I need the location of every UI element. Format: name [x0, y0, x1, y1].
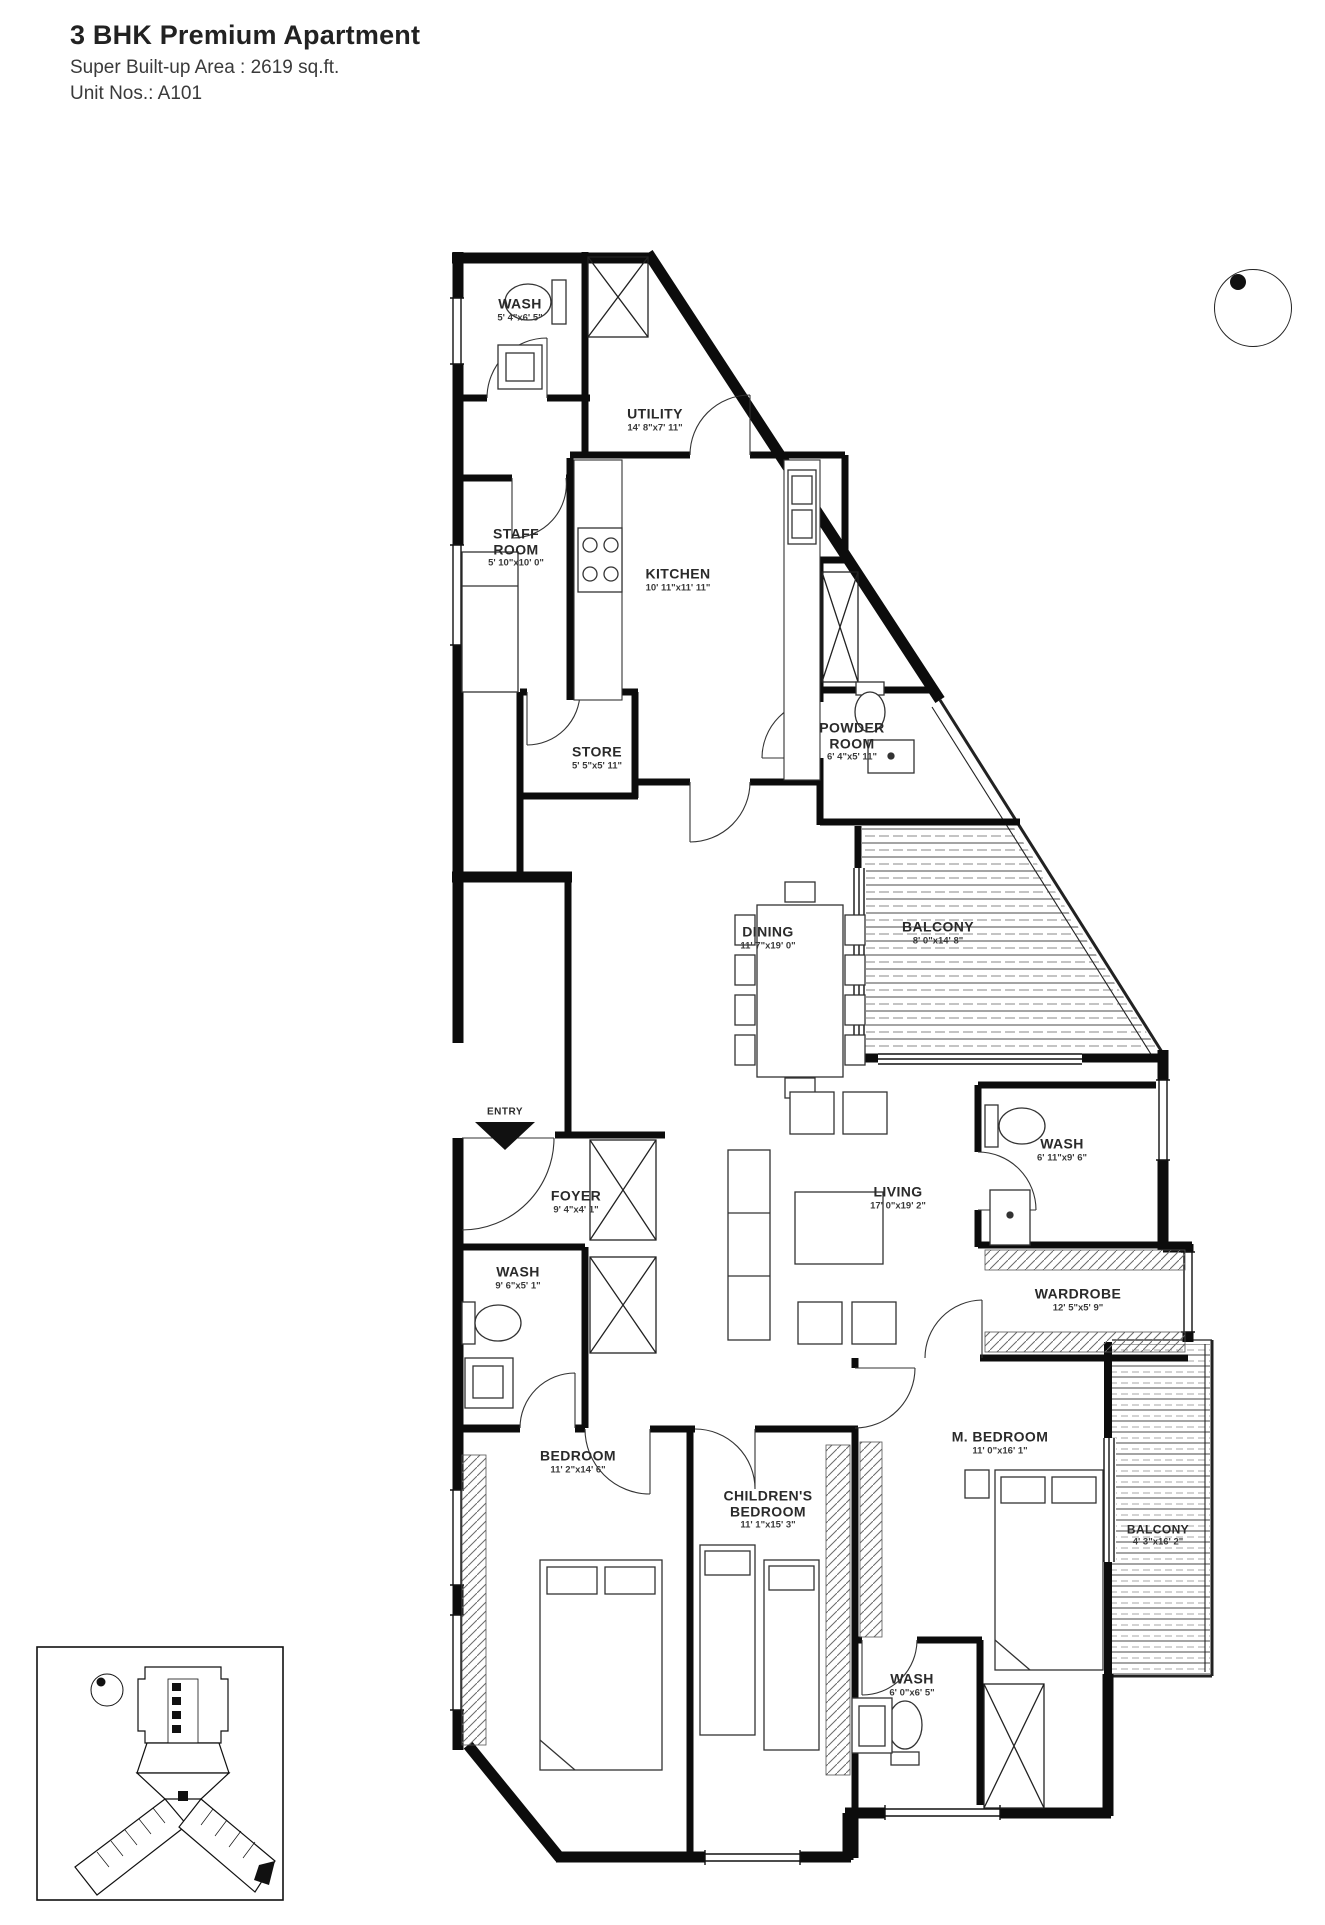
master-bed-icon — [965, 1470, 1103, 1670]
toilet-powder-icon — [855, 682, 885, 732]
stove-icon — [578, 528, 622, 592]
key-plan-svg — [35, 1645, 285, 1902]
toilet-wash2-icon — [462, 1302, 521, 1408]
toilet-wash-bottom-icon — [852, 1698, 922, 1765]
dining-table-icon — [735, 882, 865, 1098]
basin-powder-icon — [868, 740, 914, 773]
key-plan-compass-icon — [91, 1674, 123, 1706]
bedroom-bed-icon — [540, 1560, 662, 1770]
floor-plan-svg — [0, 0, 1325, 1925]
toilet-wash1-icon — [505, 280, 566, 324]
toilet-wash-living-icon — [985, 1105, 1045, 1245]
kitchen-counter-icon — [574, 460, 820, 780]
basin-wash1-icon — [498, 345, 542, 389]
staff-bed-icon — [462, 552, 518, 692]
sofa-set-icon — [728, 1092, 896, 1344]
children-beds-icon — [700, 1545, 819, 1750]
floor-plan-page: 3 BHK Premium Apartment Super Built-up A… — [0, 0, 1325, 1925]
entry-label: ENTRY — [487, 1107, 523, 1118]
kitchen-sink-icon — [788, 470, 816, 544]
entry-arrow-icon — [475, 1122, 535, 1150]
